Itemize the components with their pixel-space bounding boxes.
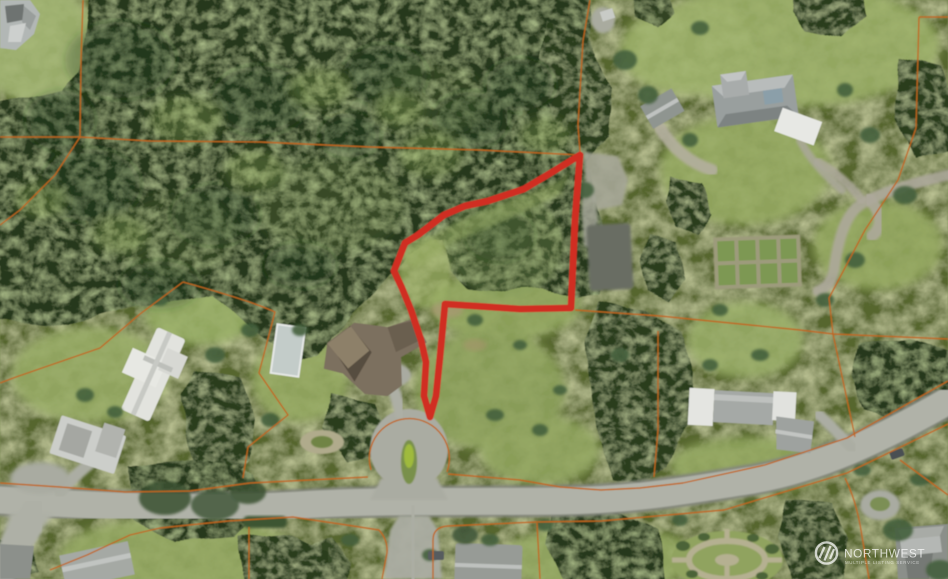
svg-text:NORTHWEST: NORTHWEST — [844, 547, 925, 561]
svg-text:MULTIPLE LISTING SERVICE: MULTIPLE LISTING SERVICE — [845, 560, 920, 565]
